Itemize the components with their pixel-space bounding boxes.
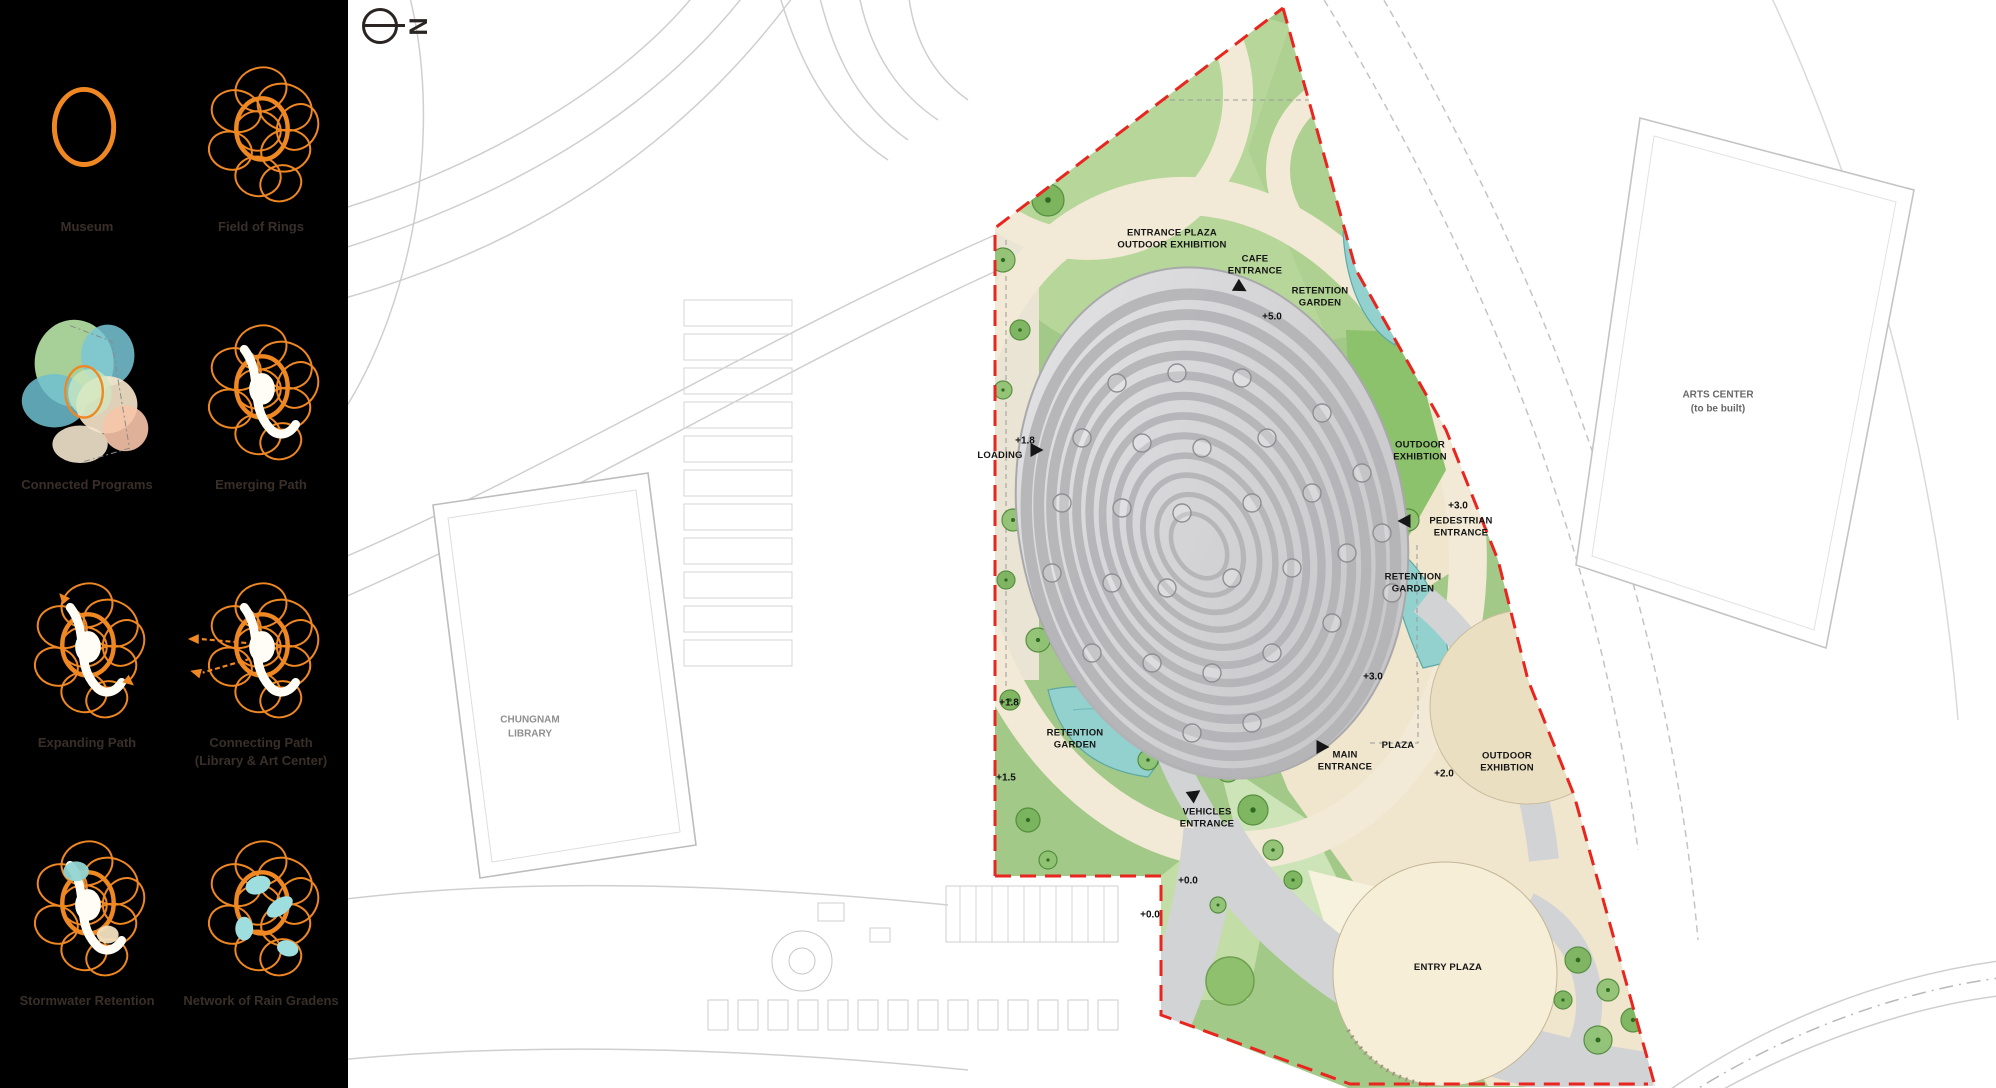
chungnam-library-building (433, 473, 696, 878)
label-outdoor-exhibition-east: OUTDOOR EXHIBTION (1393, 440, 1447, 465)
elevation-pedestrian: +3.0 (1448, 501, 1468, 512)
elevation-east: +3.0 (1363, 672, 1383, 683)
north-letter: N (405, 17, 430, 35)
diagram-connecting-path: Connecting Path (Library & Art Center) (174, 542, 348, 800)
site-plan-drawing (348, 0, 1996, 1088)
diagram-label: Stormwater Retention (19, 992, 154, 1010)
elevation-south: +2.0 (1434, 769, 1454, 780)
diagram-connected-programs: Connected Programs (0, 284, 174, 542)
label-cafe-entrance: CAFE ENTRANCE (1228, 254, 1282, 279)
label-chungnam-library: CHUNGNAM LIBRARY (500, 714, 559, 741)
site-plan: N ENTRANCE PLAZA OUTDOOR EXHIBITION CAFE… (348, 0, 1996, 1088)
label-retention-garden-east: RETENTION GARDEN (1385, 572, 1442, 597)
diagram-label: Expanding Path (38, 734, 136, 752)
loading-arrow-icon (1031, 443, 1044, 457)
terraced-garden (684, 300, 792, 666)
connecting-path-diagram-icon (186, 556, 336, 724)
elevation-west-lower: +1.5 (996, 773, 1016, 784)
elevation-vehicles-a: +0.0 (1178, 876, 1198, 887)
label-plaza: PLAZA (1382, 740, 1415, 752)
diagram-museum: Museum (0, 26, 174, 284)
elevation-west-upper: +1.8 (999, 698, 1019, 709)
rain-gradens-diagram-icon (186, 814, 336, 982)
label-vehicles-entrance: VEHICLES ENTRANCE (1180, 807, 1234, 832)
diagram-field-of-rings: Field of Rings (174, 26, 348, 284)
diagram-stormwater-retention: Stormwater Retention (0, 800, 174, 1058)
label-loading: LOADING (977, 450, 1022, 462)
pedestrian-entrance-arrow-icon (1398, 514, 1411, 528)
museum-diagram-icon (12, 40, 162, 208)
diagram-label: Connecting Path (Library & Art Center) (195, 734, 327, 769)
expanding-path-diagram-icon (12, 556, 162, 724)
diagram-label: Connected Programs (21, 476, 152, 494)
field-of-rings-diagram-icon (186, 40, 336, 208)
label-entrance-plaza: ENTRANCE PLAZA OUTDOOR EXHIBITION (1117, 228, 1226, 253)
north-arrow-icon: N (362, 8, 426, 44)
parking-area (708, 886, 1118, 1030)
arts-center-building (1576, 118, 1914, 648)
connected-programs-diagram-icon (12, 298, 162, 466)
diagram-label: Network of Rain Gradens (183, 992, 338, 1010)
diagram-network-of-rain-gradens: Network of Rain Gradens (174, 800, 348, 1058)
elevation-vehicles-b: +0.0 (1140, 910, 1160, 921)
label-retention-garden-west: RETENTION GARDEN (1047, 728, 1104, 753)
stormwater-retention-diagram-icon (12, 814, 162, 982)
label-arts-center: ARTS CENTER (to be built) (1682, 389, 1753, 416)
label-outdoor-exhibition-south: OUTDOOR EXHIBTION (1480, 751, 1534, 776)
diagram-emerging-path: Emerging Path (174, 284, 348, 542)
diagram-expanding-path: Expanding Path (0, 542, 174, 800)
label-entry-plaza: ENTRY PLAZA (1414, 962, 1482, 974)
label-retention-garden-top: RETENTION GARDEN (1292, 286, 1349, 311)
diagram-label: Field of Rings (218, 218, 304, 236)
label-pedestrian-entrance: PEDESTRIAN ENTRANCE (1429, 516, 1492, 541)
diagram-label: Museum (61, 218, 114, 236)
emerging-path-diagram-icon (186, 298, 336, 466)
elevation-cafe: +5.0 (1262, 312, 1282, 323)
main-entrance-arrow-icon (1317, 740, 1330, 754)
concept-sidebar: Museum Field of Rings Connected Programs… (0, 0, 348, 1088)
diagram-label: Emerging Path (215, 476, 307, 494)
